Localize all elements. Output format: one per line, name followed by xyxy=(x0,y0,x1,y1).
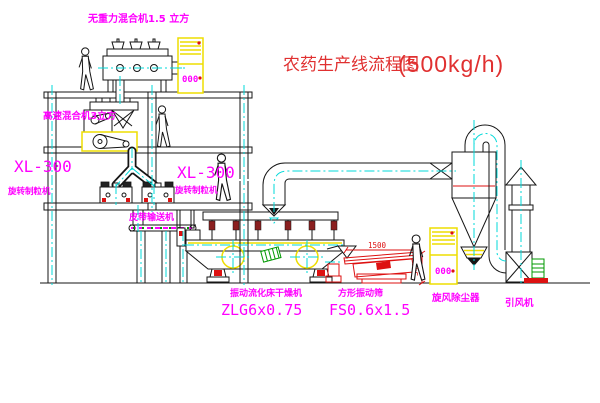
screen-model-label: FS0.6x1.5 xyxy=(329,301,410,319)
control-cabinet-1: 000 xyxy=(178,38,203,93)
dryer-foot-left xyxy=(207,269,229,282)
process-flow-diagram: 000 xyxy=(0,0,600,403)
fan-base xyxy=(524,278,548,283)
control-cabinet-2: 000 xyxy=(430,228,457,284)
diagram-capacity: (500kg/h) xyxy=(398,51,504,77)
gravity-mixer-label: 无重力混合机1.5 立方 xyxy=(87,12,189,25)
speed-mixer-label: 高速混合机3立方 xyxy=(43,110,117,122)
induced-draft-fan xyxy=(506,252,548,283)
screen-name-label: 方形振动筛 xyxy=(338,287,383,299)
person-figure-2 xyxy=(156,106,170,147)
fan-label: 引风机 xyxy=(505,297,534,309)
granulator-right-machine xyxy=(142,182,174,203)
xl300-mid-label: XL-300 xyxy=(177,163,235,182)
high-speed-mixer xyxy=(82,98,138,151)
dryer-model-label: ZLG6x0.75 xyxy=(221,301,302,319)
fluid-bed-dryer xyxy=(186,212,356,282)
xl300-left-label: XL-300 xyxy=(14,157,72,176)
dryer-name-label: 振动流化床干燥机 xyxy=(230,287,302,299)
fan-motor xyxy=(532,259,544,278)
person-figure-1 xyxy=(79,48,93,90)
dim-1500-label: 1500 xyxy=(368,241,387,250)
granulator-mid-label: 旋转制粒机 xyxy=(174,185,218,196)
belt-conveyor-label: 皮带输送机 xyxy=(128,211,174,223)
dryer-spring-mounts xyxy=(209,220,337,240)
granulator-left-label: 旋转制粒机 xyxy=(7,186,51,197)
cabinet-2-display: 000 xyxy=(435,267,451,277)
cyclone-label: 旋风除尘器 xyxy=(431,292,480,304)
cabinet-1-display: 000 xyxy=(182,75,198,85)
